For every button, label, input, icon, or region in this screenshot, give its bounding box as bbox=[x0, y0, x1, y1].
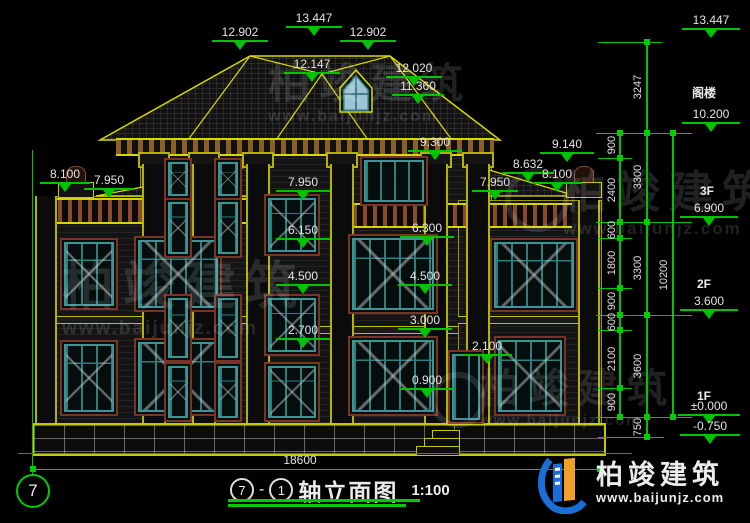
title-scale: 1:100 bbox=[411, 482, 449, 499]
elevation-mark: 13.447 bbox=[286, 12, 342, 42]
level-triangle-icon bbox=[103, 190, 115, 204]
level-triangle-icon bbox=[703, 218, 715, 232]
dim-chain-line bbox=[646, 42, 648, 437]
elevation-value: 10.200 bbox=[693, 107, 730, 121]
elevation-value: 3.600 bbox=[694, 294, 724, 308]
level-triangle-icon bbox=[703, 311, 715, 325]
level-triangle-icon bbox=[561, 154, 573, 168]
elevation-value: 11.360 bbox=[400, 79, 436, 93]
elevation-value: 9.140 bbox=[552, 137, 582, 151]
level-triangle-icon bbox=[429, 152, 441, 166]
dim-value: 750 bbox=[632, 405, 644, 449]
window bbox=[164, 158, 192, 200]
elevation-value: 8.100 bbox=[542, 167, 572, 181]
window bbox=[164, 362, 192, 422]
axis-line bbox=[32, 150, 33, 476]
window bbox=[214, 362, 242, 422]
elevation-mark: 12.147 bbox=[284, 58, 340, 88]
level-triangle-icon bbox=[489, 192, 501, 206]
elevation-value: 0.900 bbox=[412, 373, 442, 387]
elevation-value: 4.500 bbox=[410, 269, 440, 283]
dim-value: 3600 bbox=[632, 344, 644, 388]
window bbox=[60, 340, 118, 416]
window-panes bbox=[218, 162, 238, 196]
level-triangle-icon bbox=[297, 240, 309, 254]
axis-bubble: 7 bbox=[16, 474, 50, 508]
elevation-value: 2.100 bbox=[472, 339, 502, 353]
elevation-value: 6.150 bbox=[288, 223, 318, 237]
level-triangle-icon bbox=[421, 390, 433, 404]
window-panes bbox=[168, 202, 188, 254]
elevation-value: -0.750 bbox=[693, 419, 727, 433]
elevation-value: 9.300 bbox=[420, 135, 450, 149]
elevation-mark: 4.500 bbox=[398, 270, 452, 300]
company-logo-icon bbox=[536, 450, 590, 514]
window-panes bbox=[64, 344, 114, 412]
window-panes bbox=[168, 366, 188, 418]
level-triangle-icon bbox=[362, 42, 374, 56]
level-triangle-icon bbox=[419, 286, 431, 300]
elevation-mark: 11.360 bbox=[392, 80, 444, 110]
elevation-mark: 8.100 bbox=[40, 168, 90, 198]
overall-width-dim: 18600 bbox=[270, 453, 330, 467]
elevation-mark: 2.700 bbox=[276, 324, 330, 354]
dim-extension-line bbox=[598, 42, 662, 43]
level-triangle-icon bbox=[308, 28, 320, 42]
dim-extension-line bbox=[598, 437, 664, 438]
window bbox=[214, 198, 242, 258]
dim-value: 900 bbox=[606, 380, 618, 424]
window-panes bbox=[218, 202, 238, 254]
elevation-mark: 8.100 bbox=[532, 168, 582, 198]
elevation-mark: 4.500 bbox=[276, 270, 330, 300]
storey-label-3f: 3F bbox=[700, 184, 714, 198]
elevation-mark: 0.900 bbox=[400, 374, 454, 404]
window bbox=[264, 362, 320, 422]
elevation-value: 8.100 bbox=[50, 167, 80, 181]
elevation-mark: 12.902 bbox=[340, 26, 396, 56]
window-panes bbox=[494, 242, 574, 308]
elevation-value: 2.700 bbox=[288, 323, 318, 337]
dim-tick bbox=[644, 130, 650, 136]
watermark: 柏竣建筑 www.baijunjz.com bbox=[62, 258, 306, 340]
elevation-mark: 2.100 bbox=[462, 340, 512, 370]
company-logo-name: 柏竣建筑 bbox=[596, 453, 724, 492]
dim-value: 900 bbox=[606, 123, 618, 167]
level-triangle-icon bbox=[297, 340, 309, 354]
elevation-mark: 10.200 bbox=[682, 108, 740, 138]
elevation-mark: 13.447 bbox=[682, 14, 740, 44]
level-triangle-icon bbox=[297, 286, 309, 300]
elevation-value: 13.447 bbox=[296, 11, 333, 25]
level-triangle-icon bbox=[297, 192, 309, 206]
dim-tick bbox=[30, 466, 36, 472]
dim-value: 2400 bbox=[606, 168, 618, 212]
door-panes bbox=[364, 160, 424, 202]
window bbox=[214, 158, 242, 200]
elevation-mark: 7.950 bbox=[472, 176, 518, 206]
title-underline bbox=[228, 504, 406, 507]
storey-label-2f: 2F bbox=[697, 277, 711, 291]
entry-steps bbox=[416, 446, 460, 456]
elevation-value: 12.147 bbox=[294, 57, 331, 71]
elevation-value: ±0.000 bbox=[691, 399, 728, 413]
elevation-value: 12.902 bbox=[222, 25, 259, 39]
dim-value: 3300 bbox=[632, 155, 644, 199]
overall-width-dim-line bbox=[33, 469, 600, 470]
window-panes bbox=[218, 366, 238, 418]
level-triangle-icon bbox=[306, 74, 318, 88]
level-triangle-icon bbox=[705, 124, 717, 138]
elevation-mark: 6.300 bbox=[400, 222, 454, 252]
elevation-value: 7.950 bbox=[288, 175, 318, 189]
level-triangle-icon bbox=[234, 42, 246, 56]
dim-tick bbox=[644, 312, 650, 318]
window bbox=[490, 238, 578, 312]
level-triangle-icon bbox=[481, 356, 493, 370]
level-triangle-icon bbox=[705, 30, 717, 44]
dim-tick bbox=[644, 434, 650, 440]
elevation-mark: 3.600 bbox=[680, 295, 738, 325]
level-triangle-icon bbox=[419, 330, 431, 344]
elevation-value: 4.500 bbox=[288, 269, 318, 283]
elevation-value: 7.950 bbox=[480, 175, 510, 189]
dim-value: 2100 bbox=[606, 337, 618, 381]
company-logo-url: www.baijunjz.com bbox=[596, 490, 724, 505]
elevation-value: 6.900 bbox=[694, 201, 724, 215]
level-triangle-icon bbox=[551, 184, 563, 198]
elevation-value: 12.902 bbox=[350, 25, 387, 39]
axis-number: 7 bbox=[28, 481, 37, 501]
level-triangle-icon bbox=[59, 184, 71, 198]
title-underline bbox=[228, 499, 420, 502]
elevation-value: 7.950 bbox=[94, 173, 124, 187]
elevation-value: 13.447 bbox=[693, 13, 730, 27]
dim-tick bbox=[670, 130, 676, 136]
dim-value: 3247 bbox=[632, 65, 644, 109]
elevation-value: 12.020 bbox=[396, 61, 433, 75]
elevation-value: 6.300 bbox=[412, 221, 442, 235]
dim-tick bbox=[644, 39, 650, 45]
left-corner-pilaster bbox=[35, 196, 57, 423]
elevation-mark: -0.750 bbox=[680, 420, 740, 450]
dim-value: 3300 bbox=[632, 246, 644, 290]
elevation-mark: 3.000 bbox=[398, 314, 452, 344]
level-triangle-icon bbox=[704, 436, 716, 450]
elevation-mark: 6.900 bbox=[680, 202, 738, 232]
dim-tick bbox=[670, 414, 676, 420]
dim-chain-line bbox=[672, 133, 674, 417]
dim-chain-line bbox=[619, 133, 621, 417]
storey-label-attic: 阁楼 bbox=[692, 84, 716, 101]
elevation-mark: 7.950 bbox=[276, 176, 330, 206]
window bbox=[164, 198, 192, 258]
level-triangle-icon bbox=[421, 238, 433, 252]
window-panes bbox=[268, 366, 316, 418]
elevation-value: 3.000 bbox=[410, 313, 440, 327]
title-dash: - bbox=[259, 481, 264, 499]
dim-tick bbox=[644, 414, 650, 420]
dim-value: 10200 bbox=[658, 253, 670, 297]
level-triangle-icon bbox=[412, 96, 424, 110]
elevation-mark: 7.950 bbox=[84, 174, 134, 204]
window-panes bbox=[168, 162, 188, 196]
dim-tick bbox=[644, 219, 650, 225]
elevation-mark: 6.150 bbox=[276, 224, 330, 254]
elevation-mark: 9.300 bbox=[408, 136, 462, 166]
elevation-drawing-canvas: 柏竣建筑 www.baijunjz.com 柏竣建筑 www.baijunjz.… bbox=[0, 0, 750, 523]
elevation-mark: 12.902 bbox=[212, 26, 268, 56]
